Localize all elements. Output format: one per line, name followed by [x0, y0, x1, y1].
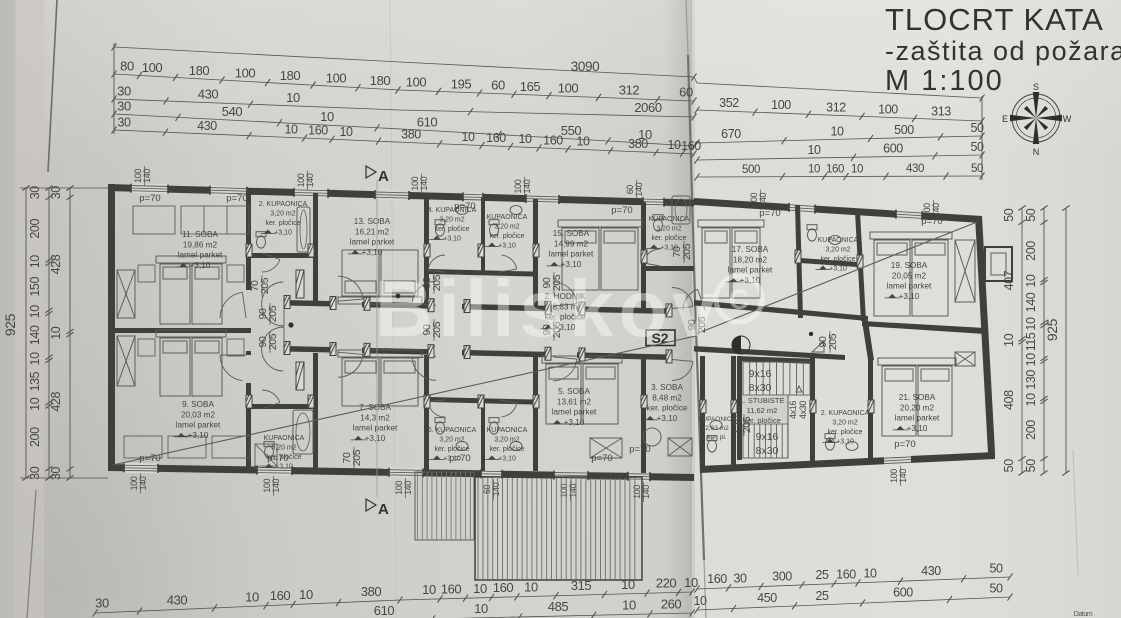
svg-text:160: 160	[543, 133, 563, 147]
svg-text:140: 140	[419, 176, 429, 190]
svg-text:19,86 m2: 19,86 m2	[183, 240, 218, 249]
svg-text:500: 500	[742, 164, 760, 176]
svg-text:+3,10: +3,10	[365, 434, 386, 443]
svg-text:205: 205	[827, 333, 839, 350]
svg-text:10: 10	[286, 90, 300, 105]
svg-text:lamel parket: lamel parket	[176, 421, 221, 430]
svg-text:140: 140	[898, 469, 908, 483]
svg-text:10: 10	[422, 582, 436, 597]
svg-text:10: 10	[339, 125, 353, 139]
svg-text:100: 100	[878, 102, 898, 116]
svg-text:10: 10	[693, 594, 707, 608]
svg-text:+3,10: +3,10	[362, 248, 383, 257]
svg-text:160: 160	[308, 124, 328, 138]
svg-text:10: 10	[1024, 353, 1038, 367]
svg-text:4x30: 4x30	[798, 401, 808, 419]
svg-text:60: 60	[679, 85, 693, 100]
svg-text:30: 30	[733, 571, 747, 585]
svg-text:10: 10	[851, 163, 863, 175]
svg-text:13. SOBA: 13. SOBA	[354, 217, 391, 226]
svg-text:80: 80	[120, 59, 134, 74]
svg-text:10: 10	[524, 579, 538, 594]
svg-text:10: 10	[245, 589, 259, 604]
svg-text:160: 160	[270, 588, 291, 603]
svg-text:p=70: p=70	[921, 216, 942, 227]
svg-text:600: 600	[893, 585, 913, 599]
svg-text:10: 10	[807, 143, 821, 157]
svg-text:100: 100	[771, 98, 791, 112]
svg-text:160: 160	[486, 131, 506, 145]
svg-text:160: 160	[707, 572, 727, 586]
svg-text:50: 50	[989, 562, 1003, 576]
svg-text:10: 10	[49, 326, 63, 340]
svg-text:670: 670	[721, 127, 741, 141]
svg-text:S: S	[1033, 82, 1039, 92]
svg-text:160: 160	[836, 567, 856, 581]
svg-text:430: 430	[906, 163, 924, 175]
svg-text:30: 30	[117, 115, 131, 129]
svg-text:+3,10: +3,10	[190, 261, 211, 270]
svg-text:3,20 m2: 3,20 m2	[439, 437, 464, 444]
svg-text:+3,10: +3,10	[498, 456, 516, 463]
svg-text:10: 10	[461, 130, 475, 144]
svg-text:50: 50	[1002, 208, 1016, 222]
svg-text:30: 30	[117, 83, 131, 98]
svg-text:2,63 m2: 2,63 m2	[705, 425, 729, 432]
svg-text:200: 200	[1024, 241, 1038, 261]
svg-text:KUPAONICA: KUPAONICA	[487, 427, 528, 434]
svg-text:260: 260	[661, 597, 682, 612]
svg-text:p=70: p=70	[139, 193, 160, 204]
svg-text:140: 140	[634, 182, 644, 196]
svg-text:50: 50	[970, 121, 984, 135]
svg-text:600: 600	[883, 142, 903, 156]
svg-text:3,20 m2: 3,20 m2	[270, 211, 295, 218]
svg-text:20,05 m2: 20,05 m2	[892, 271, 927, 280]
svg-text:KUPAONICA: KUPAONICA	[818, 237, 859, 244]
svg-text:3,20 m2: 3,20 m2	[825, 247, 850, 254]
svg-text:21. SOBA: 21. SOBA	[899, 393, 936, 402]
svg-text:160: 160	[493, 580, 514, 595]
svg-text:140: 140	[271, 479, 281, 493]
svg-text:200: 200	[1024, 420, 1038, 440]
svg-text:100: 100	[235, 65, 256, 80]
svg-text:10: 10	[622, 597, 636, 612]
svg-text:6. KUPAONICA: 6. KUPAONICA	[428, 427, 477, 434]
svg-text:115: 115	[1024, 332, 1038, 351]
svg-text:140: 140	[142, 169, 152, 183]
svg-text:p=70: p=70	[226, 193, 247, 204]
svg-text:50: 50	[1002, 459, 1016, 473]
svg-text:14,3 m2: 14,3 m2	[360, 413, 390, 422]
svg-text:430: 430	[198, 87, 219, 102]
svg-text:ker. pločice: ker. pločice	[820, 256, 855, 263]
svg-text:160: 160	[826, 164, 844, 176]
svg-text:A: A	[378, 168, 389, 185]
svg-text:p=70: p=70	[267, 453, 288, 464]
svg-text:30: 30	[117, 99, 131, 114]
svg-text:10: 10	[1024, 317, 1038, 331]
svg-text:Datum: Datum	[1074, 611, 1093, 618]
svg-text:10: 10	[1024, 274, 1038, 288]
svg-text:1. STUBISTE: 1. STUBISTE	[739, 396, 784, 405]
svg-text:+3,10: +3,10	[443, 236, 461, 243]
svg-text:18,20 m2: 18,20 m2	[733, 255, 768, 264]
svg-text:312: 312	[826, 100, 846, 114]
svg-text:10: 10	[474, 601, 488, 616]
svg-text:135: 135	[28, 371, 42, 391]
svg-text:10: 10	[28, 255, 42, 269]
svg-text:352: 352	[719, 96, 739, 110]
svg-text:30: 30	[95, 596, 109, 611]
svg-text:KUPAONICA: KUPAONICA	[264, 435, 305, 442]
svg-text:380: 380	[361, 584, 382, 599]
svg-text:17. SOBA: 17. SOBA	[732, 245, 769, 254]
svg-text:TLOCRT KATA: TLOCRT KATA	[885, 2, 1104, 37]
svg-text:10: 10	[28, 305, 42, 319]
svg-text:15. SOBA: 15. SOBA	[553, 229, 590, 238]
svg-text:p=70: p=70	[629, 444, 650, 455]
svg-text:+3,10: +3,10	[275, 464, 293, 471]
svg-text:925: 925	[1044, 318, 1060, 341]
svg-text:lamel parket: lamel parket	[728, 266, 773, 275]
svg-text:450: 450	[757, 591, 777, 605]
svg-text:ker. pločice: ker. pločice	[651, 235, 686, 242]
svg-text:3,20 m2: 3,20 m2	[439, 217, 464, 224]
svg-text:KUPAONICA: KUPAONICA	[649, 216, 690, 223]
svg-text:lamel parket: lamel parket	[895, 414, 940, 423]
svg-text:50: 50	[971, 163, 983, 175]
svg-text:10: 10	[284, 123, 298, 137]
svg-text:p=70: p=70	[894, 439, 915, 450]
svg-text:14,99 m2: 14,99 m2	[554, 239, 589, 248]
svg-text:lamel parket: lamel parket	[178, 251, 223, 260]
svg-text:5. SOBA: 5. SOBA	[558, 387, 590, 396]
svg-text:200: 200	[28, 427, 42, 447]
svg-text:9x16: 9x16	[756, 431, 779, 443]
svg-text:10: 10	[1002, 333, 1016, 347]
svg-text:+3,10: +3,10	[829, 266, 847, 273]
svg-text:ker. pločice: ker. pločice	[489, 233, 524, 240]
svg-text:205: 205	[681, 243, 693, 260]
svg-text:KUPAONICA: KUPAONICA	[487, 214, 528, 221]
svg-text:100: 100	[326, 70, 347, 85]
svg-text:-zaštita od požara: -zaštita od požara	[885, 36, 1121, 66]
svg-text:140: 140	[28, 325, 42, 345]
svg-text:140: 140	[1024, 292, 1038, 312]
svg-text:140: 140	[522, 179, 532, 193]
svg-text:10: 10	[863, 566, 877, 580]
svg-text:160: 160	[441, 582, 462, 597]
svg-text:3,20 m2: 3,20 m2	[656, 226, 681, 233]
svg-text:3,20 m2: 3,20 m2	[494, 437, 519, 444]
svg-text:25: 25	[815, 568, 829, 582]
svg-text:313: 313	[931, 104, 951, 118]
svg-text:195: 195	[451, 76, 472, 91]
svg-text:200: 200	[28, 219, 42, 239]
svg-text:2. KUPAONICA: 2. KUPAONICA	[259, 201, 308, 208]
svg-text:E: E	[1002, 114, 1008, 124]
svg-text:10: 10	[28, 352, 42, 366]
svg-text:205: 205	[267, 333, 279, 350]
svg-text:140: 140	[138, 476, 148, 490]
svg-text:lamel parket: lamel parket	[350, 238, 395, 247]
svg-text:p=70: p=70	[591, 453, 612, 464]
svg-text:+3,10: +3,10	[498, 243, 516, 250]
svg-text:8x30: 8x30	[749, 382, 772, 394]
svg-text:3090: 3090	[571, 59, 599, 74]
svg-text:+3,10: +3,10	[836, 439, 854, 446]
svg-text:500: 500	[894, 123, 914, 137]
svg-text:ker. pločice: ker. pločice	[265, 220, 300, 227]
svg-text:ker. pločice: ker. pločice	[647, 404, 688, 413]
svg-text:150: 150	[28, 277, 42, 297]
svg-text:10: 10	[830, 124, 844, 138]
svg-text:4x16: 4x16	[788, 401, 798, 419]
svg-text:11,62 m2: 11,62 m2	[747, 406, 778, 415]
svg-text:lamel parket: lamel parket	[552, 408, 597, 417]
svg-text:60: 60	[491, 78, 505, 93]
svg-text:+3,10: +3,10	[564, 418, 585, 427]
svg-text:11. SOBA: 11. SOBA	[182, 230, 218, 239]
svg-text:610: 610	[374, 603, 395, 618]
svg-text:10: 10	[1024, 393, 1038, 407]
svg-text:180: 180	[189, 63, 210, 78]
svg-text:ker. pločice: ker. pločice	[434, 446, 469, 453]
svg-text:100: 100	[142, 60, 163, 75]
svg-text:205: 205	[741, 416, 753, 433]
svg-text:100: 100	[406, 75, 427, 90]
svg-text:50: 50	[970, 140, 984, 154]
svg-text:540: 540	[222, 104, 243, 119]
svg-text:430: 430	[167, 593, 188, 608]
svg-text:50: 50	[1024, 208, 1038, 222]
svg-text:lamel parket: lamel parket	[887, 282, 932, 291]
svg-text:3,20 m2: 3,20 m2	[832, 420, 857, 427]
svg-text:3,20 m2: 3,20 m2	[494, 224, 519, 231]
svg-text:408: 408	[1002, 390, 1016, 410]
svg-text:ker. pločice: ker. pločice	[827, 429, 862, 436]
svg-text:430: 430	[921, 564, 941, 578]
svg-text:20,20 m2: 20,20 m2	[900, 403, 935, 412]
svg-text:10: 10	[28, 397, 42, 411]
svg-text:10: 10	[518, 132, 532, 146]
svg-text:19. SOBA: 19. SOBA	[891, 261, 928, 270]
svg-text:C: C	[729, 284, 749, 315]
svg-text:Biliskov: Biliskov	[375, 264, 722, 353]
svg-text:180: 180	[280, 68, 301, 83]
svg-text:10: 10	[667, 138, 681, 152]
svg-text:165: 165	[520, 79, 541, 94]
svg-text:ker. pločice: ker. pločice	[489, 446, 524, 453]
svg-text:16,21 m2: 16,21 m2	[355, 227, 390, 236]
svg-text:380: 380	[628, 137, 648, 151]
svg-text:20,03 m2: 20,03 m2	[181, 410, 216, 419]
svg-text:+3,10: +3,10	[657, 414, 678, 423]
svg-text:+3,10: +3,10	[907, 424, 928, 433]
svg-text:2060: 2060	[634, 100, 661, 115]
svg-text:+3,10: +3,10	[899, 292, 920, 301]
svg-text:10: 10	[299, 587, 313, 602]
svg-text:M 1:100: M 1:100	[885, 65, 1004, 97]
svg-text:428: 428	[49, 254, 63, 274]
svg-text:220: 220	[656, 576, 677, 591]
svg-text:10: 10	[808, 164, 820, 176]
svg-text:485: 485	[548, 599, 569, 614]
svg-text:10: 10	[576, 135, 590, 149]
svg-text:925: 925	[2, 313, 18, 336]
svg-text:10: 10	[473, 581, 487, 596]
svg-text:3,20 m2: 3,20 m2	[271, 445, 296, 452]
svg-text:140: 140	[403, 481, 413, 495]
svg-text:lamel parket: lamel parket	[549, 250, 594, 259]
svg-text:50: 50	[1024, 459, 1038, 473]
svg-text:13,61 m2: 13,61 m2	[557, 397, 592, 406]
svg-text:10: 10	[684, 575, 698, 590]
svg-text:+3,10: +3,10	[274, 230, 292, 237]
svg-text:10: 10	[621, 577, 635, 592]
svg-text:8,48 m2: 8,48 m2	[652, 393, 682, 402]
svg-text:3. SOBA: 3. SOBA	[651, 383, 683, 392]
svg-text:130: 130	[1024, 370, 1038, 390]
svg-text:180: 180	[370, 73, 391, 88]
svg-text:+3,10: +3,10	[188, 431, 209, 440]
svg-text:2. KUPAONICA: 2. KUPAONICA	[821, 410, 870, 417]
svg-text:205: 205	[259, 277, 271, 294]
svg-text:N: N	[1033, 147, 1040, 157]
svg-text:380: 380	[401, 128, 421, 142]
svg-text:8x30: 8x30	[756, 445, 779, 457]
svg-text:300: 300	[772, 570, 792, 584]
svg-text:10: 10	[320, 109, 334, 124]
svg-text:ker. pl.: ker. pl.	[707, 434, 726, 441]
svg-text:312: 312	[619, 83, 640, 98]
svg-text:9x16: 9x16	[749, 368, 772, 380]
svg-text:A: A	[378, 501, 389, 518]
svg-text:ker. pločice: ker. pločice	[434, 226, 469, 233]
svg-text:205: 205	[351, 449, 363, 466]
svg-text:p=70: p=70	[449, 453, 470, 464]
svg-text:p=70: p=70	[759, 208, 780, 219]
svg-text:428: 428	[49, 392, 63, 412]
svg-text:W: W	[1063, 114, 1072, 124]
svg-text:p=70: p=70	[454, 201, 475, 212]
svg-text:lamel parket: lamel parket	[353, 424, 398, 433]
svg-text:205: 205	[267, 305, 279, 322]
svg-text:140: 140	[305, 173, 315, 187]
svg-text:315: 315	[571, 578, 592, 593]
svg-text:p=70: p=70	[611, 205, 632, 216]
svg-text:9. SOBA: 9. SOBA	[182, 400, 214, 409]
svg-text:100: 100	[558, 80, 579, 95]
svg-text:430: 430	[197, 119, 217, 133]
svg-text:25: 25	[815, 589, 829, 603]
svg-text:50: 50	[989, 582, 1003, 596]
